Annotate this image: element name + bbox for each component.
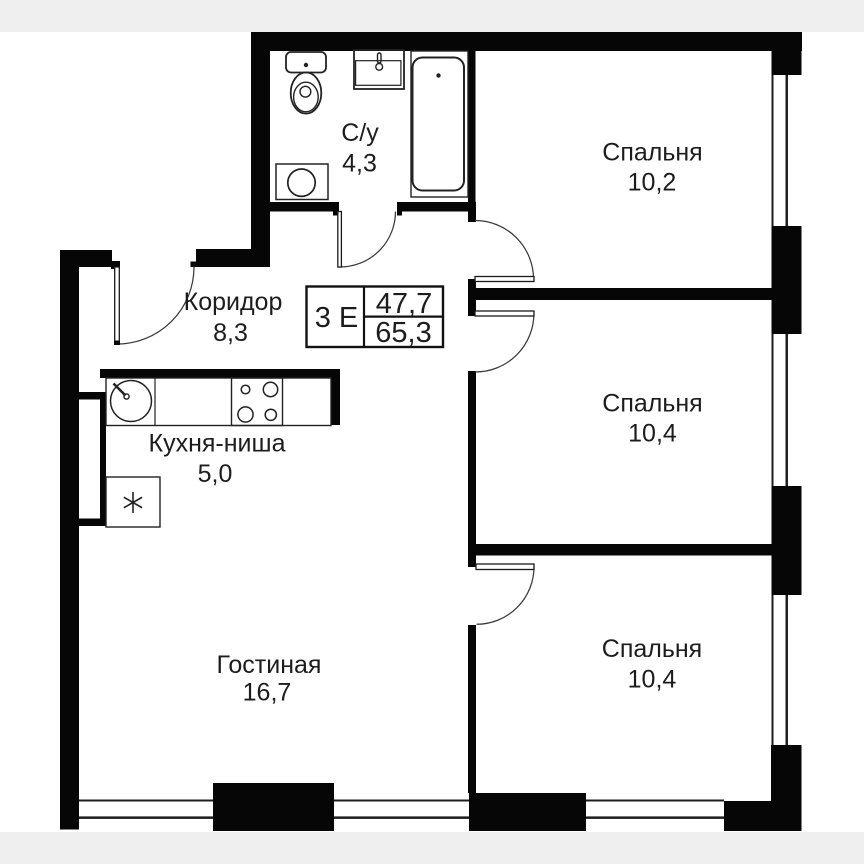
- svg-text:10,4: 10,4: [628, 420, 677, 448]
- svg-text:Коридор: Коридор: [184, 288, 283, 316]
- svg-text:10,2: 10,2: [628, 169, 677, 197]
- svg-text:Гостиная: Гостиная: [217, 651, 322, 679]
- svg-text:3 Е: 3 Е: [315, 302, 359, 334]
- svg-text:47,7: 47,7: [376, 288, 432, 320]
- svg-text:10,4: 10,4: [628, 666, 677, 694]
- svg-text:4,3: 4,3: [342, 150, 377, 178]
- svg-text:Спальня: Спальня: [602, 635, 702, 663]
- svg-text:Спальня: Спальня: [602, 390, 702, 418]
- svg-text:5,0: 5,0: [198, 460, 233, 488]
- svg-text:С/у: С/у: [341, 119, 379, 147]
- svg-text:16,7: 16,7: [243, 679, 292, 707]
- svg-text:Спальня: Спальня: [602, 139, 702, 167]
- svg-text:8,3: 8,3: [213, 319, 248, 347]
- svg-text:65,3: 65,3: [375, 317, 431, 349]
- svg-text:Кухня-ниша: Кухня-ниша: [149, 430, 286, 458]
